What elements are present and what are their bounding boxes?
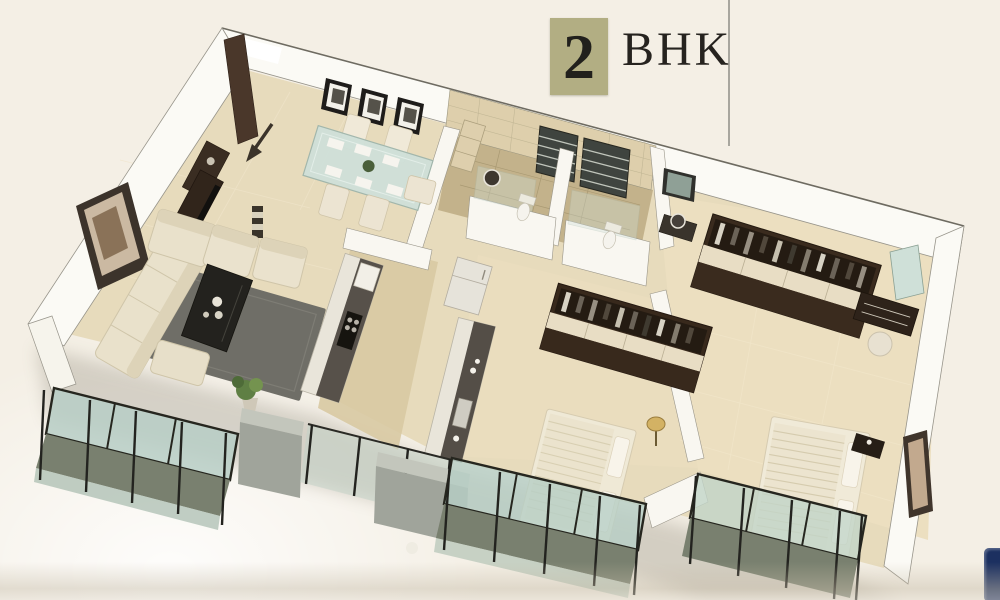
unit-number: 2 — [563, 20, 595, 94]
floor-lamp — [252, 206, 263, 238]
header-divider-line — [728, 0, 730, 146]
unit-number-badge: 2 — [550, 18, 608, 95]
vanity-stool — [868, 332, 892, 356]
unit-type-text: BHK — [622, 26, 732, 74]
unit-type-label: 2 BHK — [550, 18, 732, 95]
washbasin — [671, 214, 685, 228]
planter-pot — [406, 542, 418, 554]
floorplan-poster: 2 BHK — [0, 0, 1000, 600]
washbasin — [484, 170, 500, 186]
master-wall-mirror — [890, 245, 924, 300]
corner-logo — [984, 548, 1000, 600]
concrete-wall-block — [238, 408, 304, 498]
floorplan-illustration — [0, 0, 1000, 600]
